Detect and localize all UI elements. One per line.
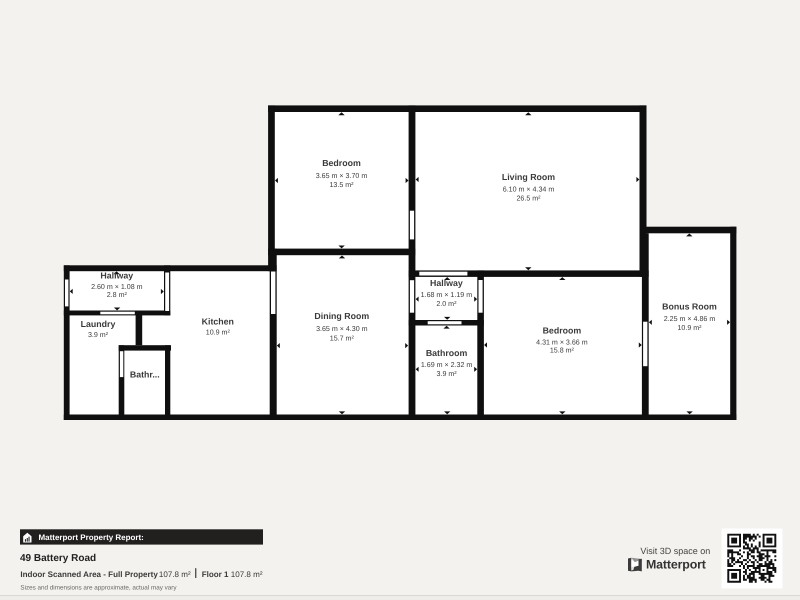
svg-text:Floor 1 107.8 m²: Floor 1 107.8 m²	[202, 570, 263, 579]
svg-text:3.65 m × 4.30 m: 3.65 m × 4.30 m	[316, 325, 368, 333]
svg-text:26.5 m²: 26.5 m²	[516, 194, 541, 202]
svg-text:Bathr...: Bathr...	[130, 370, 160, 380]
svg-text:1.69 m × 2.32 m: 1.69 m × 2.32 m	[421, 361, 473, 369]
svg-text:Bedroom: Bedroom	[543, 325, 582, 335]
svg-text:Hallway: Hallway	[430, 278, 463, 288]
svg-text:3.9 m²: 3.9 m²	[437, 370, 458, 378]
svg-text:15.7 m²: 15.7 m²	[330, 334, 355, 342]
svg-text:Indoor Scanned Area - Full Pro: Indoor Scanned Area - Full Property	[20, 570, 158, 579]
svg-text:13.5 m²: 13.5 m²	[329, 181, 354, 189]
svg-text:3.65 m × 3.70 m: 3.65 m × 3.70 m	[316, 172, 368, 180]
svg-text:3.9 m²: 3.9 m²	[88, 331, 109, 339]
svg-text:Laundry: Laundry	[81, 319, 116, 329]
svg-text:Living Room: Living Room	[502, 172, 555, 182]
svg-text:15.8 m²: 15.8 m²	[550, 346, 575, 354]
svg-text:Bedroom: Bedroom	[322, 158, 361, 168]
svg-text:107.8 m²: 107.8 m²	[159, 570, 191, 579]
svg-text:Visit 3D space on: Visit 3D space on	[640, 546, 710, 556]
svg-text:2.25 m × 4.86 m: 2.25 m × 4.86 m	[664, 315, 716, 323]
svg-text:6.10 m × 4.34 m: 6.10 m × 4.34 m	[503, 186, 555, 194]
svg-text:10.9 m²: 10.9 m²	[677, 324, 702, 332]
svg-text:Matterport: Matterport	[646, 558, 706, 572]
svg-text:Matterport Property Report:: Matterport Property Report:	[39, 533, 144, 542]
svg-text:2.60 m × 1.08 m: 2.60 m × 1.08 m	[91, 283, 143, 291]
svg-text:Kitchen: Kitchen	[202, 316, 234, 326]
svg-text:Sizes and dimensions are appro: Sizes and dimensions are approximate, ac…	[20, 585, 177, 592]
svg-text:Dining Room: Dining Room	[314, 311, 369, 321]
svg-text:Hallway: Hallway	[100, 270, 133, 280]
svg-text:Bonus Room: Bonus Room	[662, 302, 717, 312]
svg-text:2.8 m²: 2.8 m²	[107, 291, 128, 299]
svg-text:49 Battery Road: 49 Battery Road	[20, 553, 96, 564]
svg-text:2.0 m²: 2.0 m²	[436, 300, 457, 308]
svg-text:Bathroom: Bathroom	[426, 348, 468, 358]
svg-text:10.9 m²: 10.9 m²	[206, 329, 231, 337]
svg-text:1.68 m × 1.19 m: 1.68 m × 1.19 m	[421, 291, 473, 299]
